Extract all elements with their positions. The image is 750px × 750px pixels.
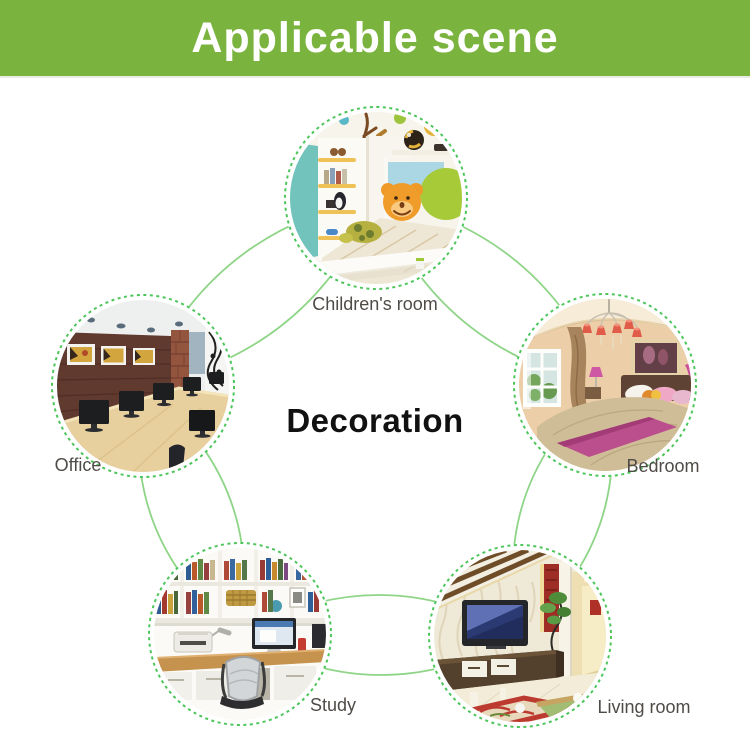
label-study: Study: [310, 695, 356, 716]
office-photo: [57, 300, 229, 472]
label-office: Office: [55, 455, 102, 476]
label-bedroom: Bedroom: [626, 456, 699, 477]
study-photo: [154, 548, 326, 720]
scene-diagram: [0, 0, 750, 750]
label-living-room: Living room: [597, 697, 690, 718]
center-label: Decoration: [286, 402, 463, 440]
label-children-room: Children's room: [312, 294, 437, 315]
page: Applicable scene: [0, 0, 750, 750]
